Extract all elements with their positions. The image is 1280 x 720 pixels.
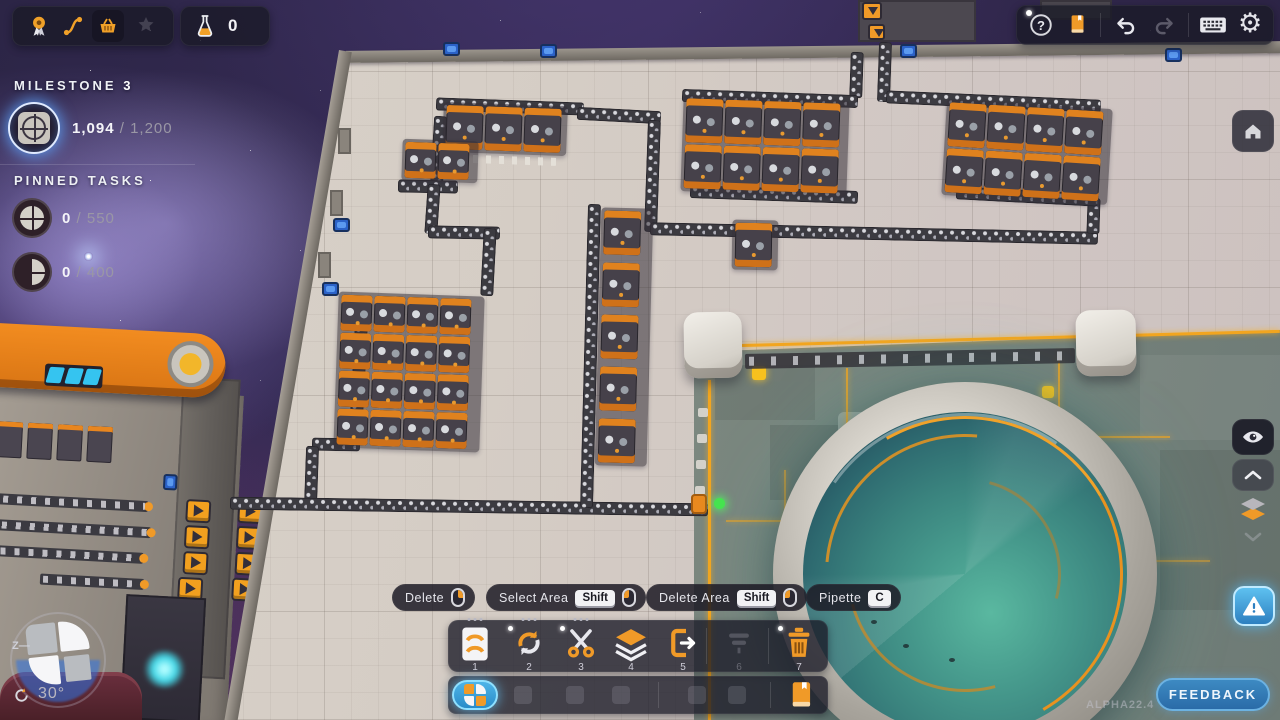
belt-launcher xyxy=(184,525,210,549)
svg-text:?: ? xyxy=(1037,18,1045,33)
basket-icon[interactable] xyxy=(92,10,124,42)
edge-tab xyxy=(338,128,351,154)
shift-key: Shift xyxy=(737,590,777,606)
milestone-title: MILESTONE 3 xyxy=(14,78,133,93)
machine-cluster-top-mid xyxy=(680,95,849,197)
hotbar-slot-locked: 6 xyxy=(716,624,762,670)
hotbar-slot-trash[interactable]: 7 xyxy=(776,624,822,670)
settings-gear-icon[interactable]: ⚙ xyxy=(1238,8,1262,39)
bright-star xyxy=(84,252,93,261)
compass-shape-icon xyxy=(25,619,93,687)
star-field xyxy=(0,0,1,1)
chevron-up-icon xyxy=(1243,468,1263,482)
layer-up-button[interactable] xyxy=(1232,459,1274,491)
hint-select-area: Select AreaShift xyxy=(486,584,646,611)
speck xyxy=(949,658,955,662)
locked-icon xyxy=(722,625,756,659)
medal-icon[interactable] xyxy=(26,13,52,39)
hint-pipette: PipetteC xyxy=(806,584,901,611)
green-item xyxy=(714,498,725,509)
hint-delete-area: Delete AreaShift xyxy=(646,584,807,611)
belt-slot xyxy=(697,434,707,443)
tab-locked xyxy=(566,686,584,704)
tab-locked xyxy=(514,686,532,704)
undo-icon[interactable] xyxy=(1112,12,1140,38)
mouse-right-icon xyxy=(451,588,465,607)
speck xyxy=(903,644,909,648)
visibility-button[interactable] xyxy=(1232,419,1274,455)
layers-indicator[interactable] xyxy=(1236,494,1270,529)
axis-label: Z— xyxy=(12,640,30,652)
circuit-trace xyxy=(726,520,786,522)
guide-book-icon xyxy=(788,680,816,710)
yellow-node xyxy=(1042,386,1054,398)
notification-dot xyxy=(1026,10,1032,16)
task-progress: 0 / 550 xyxy=(62,210,115,227)
extractor-icon xyxy=(665,625,701,661)
machine-cluster-top-right xyxy=(941,99,1113,205)
milestone-progress: 1,094 / 1,200 xyxy=(72,120,173,137)
corner-pillar-right xyxy=(1075,309,1136,376)
blue-clamp xyxy=(333,218,350,232)
corner-pillar-left xyxy=(683,311,742,378)
rotation-degrees: 30° xyxy=(38,685,65,703)
research-count: 0 xyxy=(228,16,237,36)
keyboard-icon[interactable] xyxy=(1198,13,1228,37)
tab-blueprints-selected[interactable] xyxy=(452,680,498,710)
layers-icon xyxy=(1236,494,1270,524)
hotbar-slot-cutter[interactable]: 3 xyxy=(558,624,604,670)
small-machine-pair xyxy=(401,139,478,184)
belt-port xyxy=(862,2,882,20)
cutter-icon xyxy=(563,625,599,661)
blue-clamp xyxy=(443,42,460,56)
blue-clamp xyxy=(540,44,557,58)
research-counter[interactable]: 0 xyxy=(180,6,270,46)
tab-guide-book[interactable] xyxy=(788,680,816,715)
blueprints-icon xyxy=(464,684,486,706)
home-button[interactable] xyxy=(1232,110,1274,152)
version-label: ALPHA22.4 xyxy=(1086,699,1154,711)
flask-icon xyxy=(192,13,218,39)
tab-locked xyxy=(612,686,630,704)
top-left-toolbar xyxy=(12,6,174,46)
layer-down-button[interactable] xyxy=(1242,530,1264,549)
blue-clamp xyxy=(1165,48,1182,62)
belts-icon xyxy=(458,625,492,663)
edge-tab xyxy=(330,190,343,216)
rotator-icon xyxy=(511,625,547,661)
help-icon[interactable]: ? xyxy=(1028,12,1054,38)
hotbar-slot-extractor[interactable]: 5 xyxy=(660,624,706,670)
top-right-toolbar: ? ⚙ xyxy=(1016,5,1274,45)
blue-clamp xyxy=(322,282,339,296)
tab-bar-panel xyxy=(448,676,828,714)
edge-tab xyxy=(318,252,331,278)
machine-cluster-left xyxy=(333,291,484,452)
tab-locked xyxy=(688,686,706,704)
beam-light xyxy=(166,340,214,388)
task-progress: 0 / 400 xyxy=(62,264,115,281)
left-machine-row xyxy=(0,421,113,463)
notifications-button[interactable] xyxy=(1233,586,1275,626)
blue-clamp xyxy=(900,44,917,58)
warning-icon xyxy=(1242,595,1266,617)
chevron-down-icon xyxy=(1242,530,1264,544)
mouse-left-icon xyxy=(622,588,636,607)
badge-star-icon[interactable] xyxy=(134,14,158,38)
blue-clamp xyxy=(163,474,178,491)
belt-port xyxy=(868,24,885,40)
divider xyxy=(0,164,195,165)
game-screen: 0 MILESTONE 3 1,094 / 1,200 PINNED TASKS… xyxy=(0,0,1280,720)
redo-icon[interactable] xyxy=(1150,12,1178,38)
feedback-button[interactable]: FEEDBACK xyxy=(1156,678,1270,711)
belt-slot xyxy=(698,408,708,417)
stacker-icon xyxy=(612,625,650,663)
task-shape-icon[interactable] xyxy=(12,252,52,292)
machine-column xyxy=(595,207,654,466)
knowledge-book-icon[interactable] xyxy=(1064,11,1090,37)
c-key: C xyxy=(868,590,890,606)
blue-vents xyxy=(44,364,103,389)
rotate-icon xyxy=(12,686,31,705)
milestone-shape-icon[interactable] xyxy=(8,102,60,154)
mouse-left-icon xyxy=(783,588,797,607)
hotbar-slot-rotator[interactable]: 2 xyxy=(506,624,552,670)
pinned-tasks-title: PINNED TASKS xyxy=(14,173,146,188)
belt-endpoint xyxy=(691,494,707,514)
task-shape-icon[interactable] xyxy=(12,198,52,238)
belt-slot xyxy=(696,460,706,469)
hint-delete: Delete xyxy=(392,584,475,611)
hotbar-slot-stacker[interactable]: 4 xyxy=(608,624,654,670)
tab-locked xyxy=(728,686,746,704)
home-icon xyxy=(1241,119,1265,143)
eye-icon xyxy=(1241,427,1265,447)
spline-icon[interactable] xyxy=(60,13,86,39)
orange-beam xyxy=(0,323,227,399)
rotator-machine xyxy=(732,220,779,271)
game-viewport[interactable] xyxy=(0,0,1280,720)
trash-icon xyxy=(782,625,816,661)
speck xyxy=(871,620,877,624)
shift-key: Shift xyxy=(575,590,615,606)
belt-launcher xyxy=(185,499,211,523)
belt-launcher xyxy=(182,551,208,575)
hotbar-slot-belts[interactable]: 1 xyxy=(452,624,498,670)
